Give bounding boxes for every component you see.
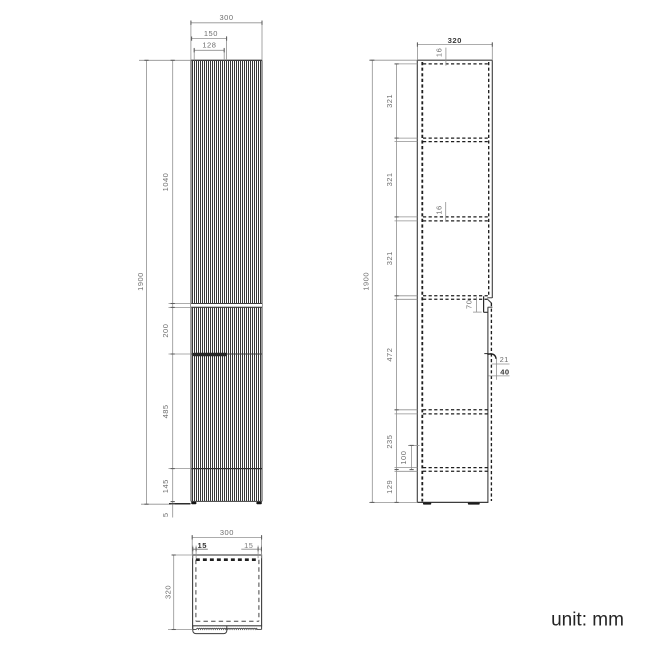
svg-text:321: 321	[385, 94, 394, 108]
svg-text:1040: 1040	[161, 173, 170, 192]
svg-text:321: 321	[385, 172, 394, 186]
svg-text:5: 5	[161, 512, 170, 517]
svg-text:100: 100	[399, 451, 408, 465]
svg-text:300: 300	[219, 13, 233, 22]
svg-text:321: 321	[385, 251, 394, 265]
svg-text:472: 472	[385, 348, 394, 362]
svg-text:1900: 1900	[136, 272, 145, 291]
svg-text:15: 15	[197, 541, 207, 550]
svg-text:150: 150	[204, 29, 218, 38]
svg-text:128: 128	[202, 41, 216, 50]
svg-text:16: 16	[434, 205, 443, 214]
svg-text:unit: mm: unit: mm	[551, 610, 624, 631]
svg-text:320: 320	[448, 36, 462, 45]
svg-text:15: 15	[244, 541, 253, 550]
svg-text:145: 145	[161, 479, 170, 493]
svg-text:300: 300	[220, 528, 234, 537]
svg-text:129: 129	[385, 480, 394, 494]
svg-text:21: 21	[500, 355, 509, 364]
svg-text:485: 485	[161, 404, 170, 418]
svg-text:1900: 1900	[362, 272, 371, 291]
svg-text:16: 16	[435, 48, 444, 57]
svg-text:40: 40	[500, 368, 509, 377]
svg-text:200: 200	[161, 324, 170, 338]
svg-text:70: 70	[464, 300, 473, 309]
svg-text:320: 320	[163, 585, 172, 599]
svg-text:235: 235	[385, 435, 394, 449]
